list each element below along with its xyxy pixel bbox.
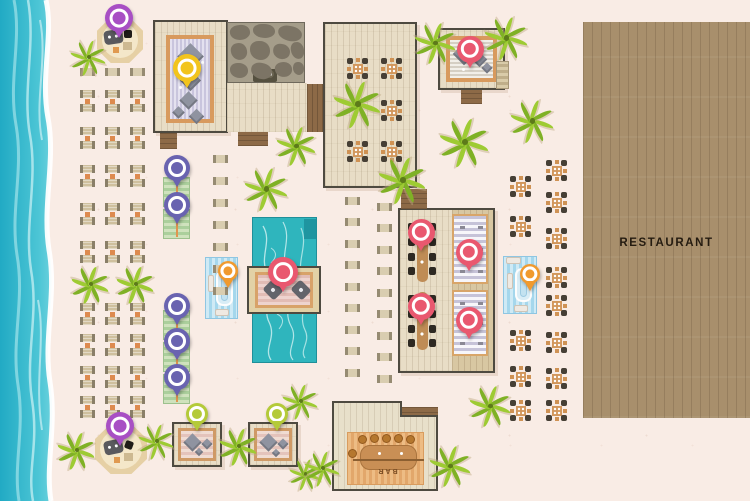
sun-lounger: [377, 289, 392, 297]
dining-table: [510, 330, 531, 351]
stone: [290, 41, 305, 60]
palm-tree-icon: [415, 23, 455, 63]
palm-tree-icon: [470, 386, 510, 426]
sun-lounger: [377, 332, 392, 340]
palm-tree-icon: [245, 168, 287, 210]
sun-lounger-pair: [130, 366, 145, 388]
spa-deck-north-pin[interactable]: [173, 54, 201, 82]
sun-lounger: [213, 221, 228, 229]
sun-lounger-pair: [80, 334, 95, 356]
sun-lounger-pair: [80, 241, 95, 263]
stone: [277, 24, 303, 43]
sun-lounger: [213, 155, 228, 163]
palm-tree-icon: [334, 81, 380, 127]
pool-platform-pin[interactable]: [268, 257, 298, 287]
side-table: [507, 273, 513, 289]
palm-tree-icon: [379, 157, 425, 203]
palm-tree-icon: [71, 40, 105, 74]
cabana-west-pin[interactable]: [218, 261, 238, 281]
sun-lounger: [213, 177, 228, 185]
sun-lounger-pair: [130, 203, 145, 225]
spa-stone: [272, 449, 280, 457]
daybed-row-1-pin[interactable]: [164, 155, 190, 181]
bar-building[interactable]: BAR: [332, 401, 438, 491]
palm-tree-icon: [440, 118, 488, 166]
sun-lounger-pair: [105, 203, 120, 225]
dining-table-east-1-pin[interactable]: [408, 219, 435, 246]
spa-stone: [277, 438, 288, 449]
annex-deck: [227, 83, 307, 132]
side-table: [506, 257, 521, 264]
sun-lounger-pair: [80, 396, 95, 418]
stone: [250, 41, 270, 60]
bar-stool: [406, 435, 415, 444]
pier: [307, 84, 323, 132]
pier: [461, 90, 482, 104]
cabana-east-pin[interactable]: [520, 264, 540, 284]
ocean: [0, 0, 70, 501]
stone-patio: [227, 22, 305, 83]
dining-table: [347, 58, 368, 79]
restaurant-label: RESTAURANT: [583, 237, 750, 249]
dining-table: [546, 192, 567, 213]
spa-deck-northeast-pin[interactable]: [457, 36, 484, 63]
dining-table: [510, 400, 531, 421]
spa-stone: [172, 106, 185, 119]
sun-lounger-pair: [130, 165, 145, 187]
dining-table: [510, 176, 531, 197]
sun-lounger-pair: [80, 127, 95, 149]
palm-tree-icon: [430, 446, 470, 486]
dining-table: [510, 216, 531, 237]
massage-deck-east-pin[interactable]: [266, 403, 288, 425]
hut-mat: [123, 42, 132, 50]
dining-table-east-2-pin[interactable]: [408, 293, 435, 320]
sun-lounger: [377, 310, 392, 318]
spa-stone: [189, 109, 205, 125]
sun-lounger-pair: [105, 366, 120, 388]
lounge-mat-east-1-pin[interactable]: [456, 239, 483, 266]
hut-cushion: [113, 47, 119, 53]
ocean-waves-icon: [0, 0, 70, 501]
sun-lounger-pair: [105, 127, 120, 149]
spa-dot: [462, 68, 465, 71]
massage-deck-west-pin[interactable]: [186, 403, 208, 425]
sun-lounger-pair: [80, 203, 95, 225]
sun-lounger-pair: [130, 241, 145, 263]
spa-stone: [195, 448, 203, 456]
sun-lounger-pair: [80, 366, 95, 388]
daybed-row-3-pin[interactable]: [164, 293, 190, 319]
sun-lounger: [345, 240, 360, 248]
daybed-row-5-pin[interactable]: [164, 364, 190, 390]
resort-map: RESTAURANT: [0, 0, 750, 501]
sun-lounger: [345, 197, 360, 205]
sun-lounger: [377, 224, 392, 232]
lounge-mat-east-2-pin[interactable]: [456, 307, 483, 334]
palm-tree-icon: [139, 424, 173, 458]
palm-tree-icon: [220, 428, 256, 464]
sun-lounger: [345, 369, 360, 377]
hut-cushion: [114, 457, 120, 463]
sun-lounger: [345, 326, 360, 334]
palm-tree-icon: [511, 100, 553, 142]
dining-table: [546, 160, 567, 181]
palm-tree-icon: [58, 432, 94, 468]
daybed-row-4-pin[interactable]: [164, 328, 190, 354]
hut-table: [124, 30, 132, 38]
massage-mat-east: [254, 428, 292, 461]
stone: [229, 24, 251, 42]
stone: [230, 63, 248, 78]
sun-lounger: [130, 68, 145, 76]
stone: [253, 24, 275, 38]
bar-stool: [394, 434, 403, 443]
bar-stool: [370, 434, 379, 443]
sun-lounger-pair: [80, 165, 95, 187]
palm-tree-icon: [305, 451, 339, 485]
sun-lounger-pair: [80, 90, 95, 112]
sun-lounger: [377, 353, 392, 361]
sun-lounger: [377, 246, 392, 254]
dining-table: [381, 58, 402, 79]
spa-stone: [201, 438, 212, 449]
palm-tree-icon: [117, 266, 153, 302]
sun-lounger-pair: [130, 396, 145, 418]
sun-lounger-pair: [130, 90, 145, 112]
sun-lounger: [377, 203, 392, 211]
sun-lounger: [345, 261, 360, 269]
sun-lounger: [377, 267, 392, 275]
dining-table: [546, 368, 567, 389]
palm-tree-icon: [283, 384, 317, 418]
dining-table: [546, 400, 567, 421]
hut-south-pin[interactable]: [106, 412, 134, 440]
sun-lounger-pair: [105, 303, 120, 325]
sun-lounger-pair: [105, 334, 120, 356]
dining-table: [546, 228, 567, 249]
stone: [230, 42, 248, 61]
hut-north-pin[interactable]: [105, 4, 133, 32]
sun-lounger: [345, 304, 360, 312]
sun-lounger-pair: [130, 303, 145, 325]
palm-tree-icon: [485, 17, 527, 59]
bar-label: BAR: [362, 467, 412, 474]
daybed-row-2-pin[interactable]: [164, 192, 190, 218]
bar-stool: [382, 434, 391, 443]
dining-table: [546, 267, 567, 288]
palm-tree-icon: [72, 266, 108, 302]
sun-lounger: [345, 283, 360, 291]
pier: [160, 133, 177, 149]
side-table: [215, 309, 229, 316]
sun-lounger-pair: [105, 165, 120, 187]
sun-lounger: [496, 61, 509, 89]
sun-lounger-pair: [130, 334, 145, 356]
spa-dot: [201, 61, 204, 64]
sun-lounger: [345, 218, 360, 226]
restaurant-deck[interactable]: RESTAURANT: [583, 22, 750, 418]
dining-table: [510, 366, 531, 387]
spa-stone: [481, 62, 492, 73]
sun-lounger-pair: [130, 127, 145, 149]
sun-lounger: [345, 347, 360, 355]
sun-lounger: [377, 375, 392, 383]
pier: [238, 132, 268, 146]
dining-table: [381, 100, 402, 121]
sun-lounger: [213, 199, 228, 207]
bar-stool: [358, 435, 367, 444]
pool-ledge: [304, 219, 316, 239]
sun-lounger: [213, 287, 228, 295]
dining-table: [347, 141, 368, 162]
spa-stone: [179, 91, 197, 109]
sun-lounger-pair: [105, 90, 120, 112]
dining-table: [546, 295, 567, 316]
side-table: [514, 305, 528, 312]
sun-lounger: [105, 68, 120, 76]
stone: [293, 62, 304, 75]
sun-lounger: [213, 243, 228, 251]
stone: [272, 43, 291, 60]
dining-table: [546, 332, 567, 353]
sun-lounger-pair: [80, 303, 95, 325]
palm-tree-icon: [277, 127, 315, 165]
sun-lounger-pair: [105, 241, 120, 263]
bar-stool: [348, 449, 357, 458]
hut-mat: [124, 453, 133, 461]
massage-mat-west: [178, 428, 216, 461]
